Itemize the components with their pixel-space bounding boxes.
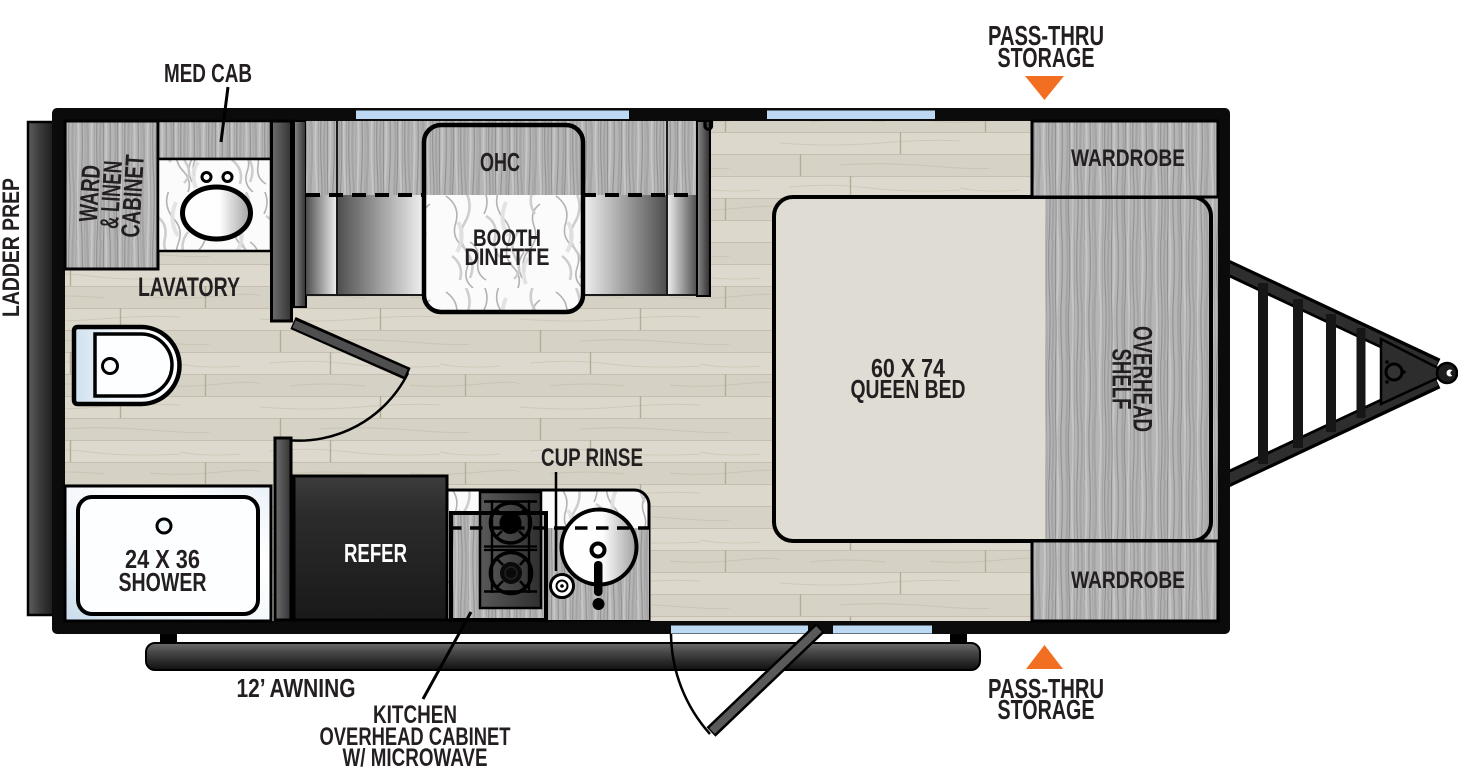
- svg-text:WARDROBE: WARDROBE: [1071, 145, 1185, 172]
- svg-text:CUP RINSE: CUP RINSE: [541, 444, 643, 472]
- svg-text:SHOWER: SHOWER: [119, 567, 207, 597]
- svg-text:MED CAB: MED CAB: [164, 58, 252, 88]
- svg-text:QUEEN BED: QUEEN BED: [851, 374, 966, 404]
- svg-text:STORAGE: STORAGE: [998, 694, 1095, 725]
- svg-text:SHELF: SHELF: [1107, 349, 1137, 410]
- svg-text:WARDROBE: WARDROBE: [1071, 567, 1185, 594]
- svg-text:12’ AWNING: 12’ AWNING: [237, 673, 356, 703]
- svg-text:W/ MICROWAVE: W/ MICROWAVE: [343, 744, 488, 768]
- svg-text:CABINET: CABINET: [115, 154, 150, 239]
- svg-text:STORAGE: STORAGE: [998, 42, 1095, 73]
- svg-text:REFER: REFER: [344, 538, 407, 568]
- svg-text:DINETTE: DINETTE: [465, 244, 550, 271]
- svg-text:LAVATORY: LAVATORY: [138, 272, 240, 302]
- svg-text:OHC: OHC: [480, 147, 520, 177]
- svg-text:LADDER PREP: LADDER PREP: [0, 178, 25, 317]
